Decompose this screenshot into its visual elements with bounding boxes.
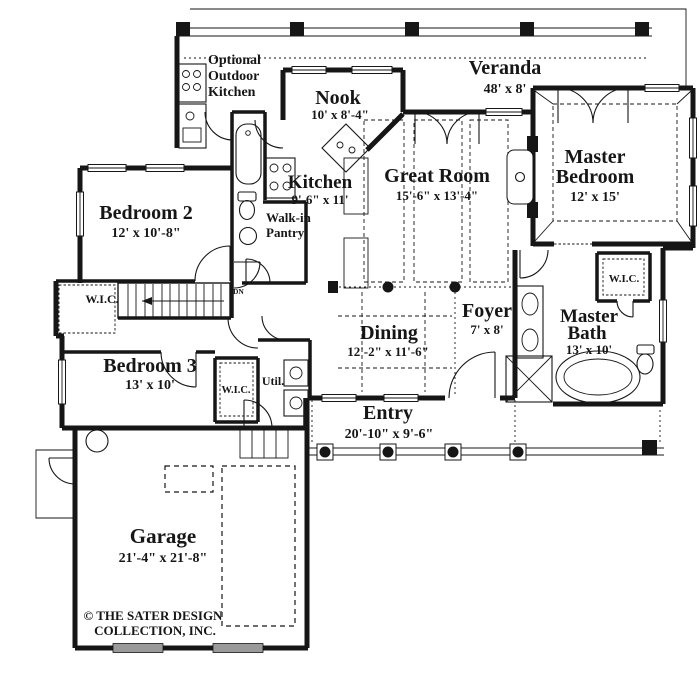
util-label: Util. (262, 374, 284, 388)
wic-master-label: W.I.C. (609, 273, 640, 285)
foyer-label: Foyer (462, 300, 512, 322)
porch-column (380, 444, 396, 460)
wic-bed3-label: W.I.C. (221, 385, 250, 396)
bath2-fixtures (236, 124, 261, 245)
window (660, 300, 667, 342)
window (690, 118, 697, 158)
stairs-dn-label: DN (233, 287, 244, 296)
copyright-line-2: COLLECTION, INC. (94, 623, 216, 638)
dining-label: Dining (360, 322, 418, 344)
garage-label: Garage (130, 524, 196, 548)
window (88, 165, 126, 172)
veranda-label: Veranda (469, 57, 542, 79)
pantry-label-2: Pantry (266, 225, 305, 240)
outdoor-kitchen-label-1: Optional (208, 53, 261, 68)
foyer-dims: 7' x 8' (470, 322, 503, 337)
porch-column (510, 444, 526, 460)
dining-dims: 12'-2" x 11'-6" (347, 344, 429, 359)
window (322, 395, 356, 402)
outdoor-kitchen-label-3: Kitchen (208, 85, 256, 100)
veranda-dims: 48' x 8' (484, 82, 527, 97)
master-bedroom-dims: 12' x 15' (570, 190, 620, 205)
wic-hall-label: W.I.C. (85, 292, 118, 306)
porch-post (642, 440, 657, 455)
room-labels: Veranda 48' x 8' Optional Outdoor Kitche… (84, 53, 640, 638)
entry-dims: 20'-10" x 9'-6" (345, 427, 434, 442)
porch-column (445, 444, 461, 460)
window (690, 186, 697, 226)
garage-door (213, 644, 263, 653)
master-bath-label-2: Bath (567, 323, 607, 344)
bedroom3-dims: 13' x 10' (125, 378, 175, 393)
copyright-line-1: © THE SATER DESIGN (84, 608, 224, 623)
staircase (118, 283, 230, 318)
master-bedroom-label-2: Bedroom (556, 166, 635, 188)
master-bedroom-label-1: Master (564, 146, 625, 168)
pantry-label-1: Walk-in (266, 210, 312, 225)
entry-porch (306, 440, 664, 460)
window (486, 109, 522, 116)
grill-fixture (179, 64, 206, 148)
porch-column (317, 444, 333, 460)
fixtures (36, 64, 654, 626)
great-room-dims: 15'-6" x 13'-4" (396, 188, 478, 203)
window (384, 395, 418, 402)
window (146, 165, 184, 172)
window (59, 360, 66, 404)
window (645, 85, 679, 92)
window (77, 192, 84, 236)
bedroom2-dims: 12' x 10'-8" (111, 226, 180, 241)
master-bath-dims: 13' x 10' (566, 342, 612, 357)
garage-dims: 21'-4" x 21'-8" (119, 551, 208, 566)
window (292, 67, 326, 74)
garage-door (113, 644, 163, 653)
nook-dims: 10' x 8'-4" (311, 107, 369, 122)
window (352, 67, 392, 74)
kitchen-dims: 9'-6" x 11' (291, 192, 348, 207)
bedroom3-label: Bedroom 3 (103, 355, 197, 377)
floor-plan-drawing: Veranda 48' x 8' Optional Outdoor Kitche… (0, 0, 700, 685)
nook-label: Nook (315, 87, 361, 109)
outdoor-kitchen-label-2: Outdoor (208, 69, 259, 84)
bedroom2-label: Bedroom 2 (99, 202, 193, 224)
entry-label: Entry (363, 402, 413, 424)
kitchen-label: Kitchen (288, 172, 353, 193)
media-niche (507, 136, 538, 218)
floor-plan-page: Veranda 48' x 8' Optional Outdoor Kitche… (0, 0, 700, 685)
great-room-label: Great Room (384, 165, 490, 187)
